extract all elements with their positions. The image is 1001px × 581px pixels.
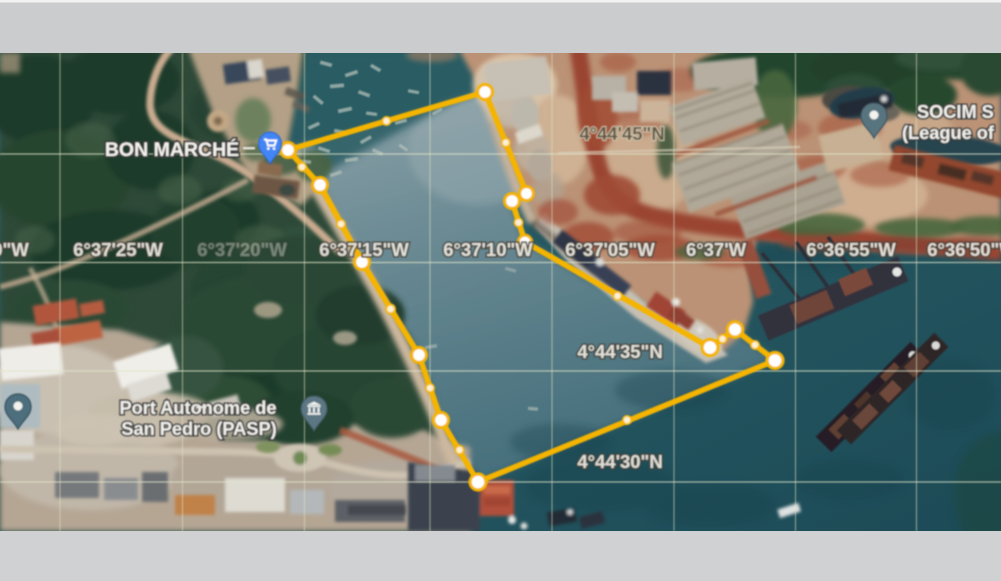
svg-text:6°37'W: 6°37'W	[686, 239, 747, 260]
svg-text:6°37'10"W: 6°37'10"W	[443, 239, 533, 260]
svg-text:6°36'50"W: 6°36'50"W	[927, 239, 1001, 260]
svg-text:6°37'05"W: 6°37'05"W	[565, 239, 655, 260]
svg-text:4°44'35"N: 4°44'35"N	[577, 341, 662, 362]
svg-text:SOCIM S: SOCIM S	[917, 102, 994, 122]
svg-text:6°37'30"W: 6°37'30"W	[0, 239, 29, 260]
svg-text:4°44'45"N: 4°44'45"N	[579, 123, 664, 144]
svg-text:6°37'25"W: 6°37'25"W	[73, 239, 163, 260]
svg-text:BON MARCHÉ: BON MARCHÉ	[105, 138, 239, 161]
svg-text:(League of: (League of	[902, 123, 995, 143]
svg-text:6°37'15"W: 6°37'15"W	[319, 239, 409, 260]
svg-text:San Pedro (PASP): San Pedro (PASP)	[121, 419, 276, 439]
svg-text:4°44'30"N: 4°44'30"N	[577, 451, 662, 472]
svg-text:6°37'20"W: 6°37'20"W	[197, 239, 287, 260]
svg-text:6°36'55"W: 6°36'55"W	[806, 239, 896, 260]
